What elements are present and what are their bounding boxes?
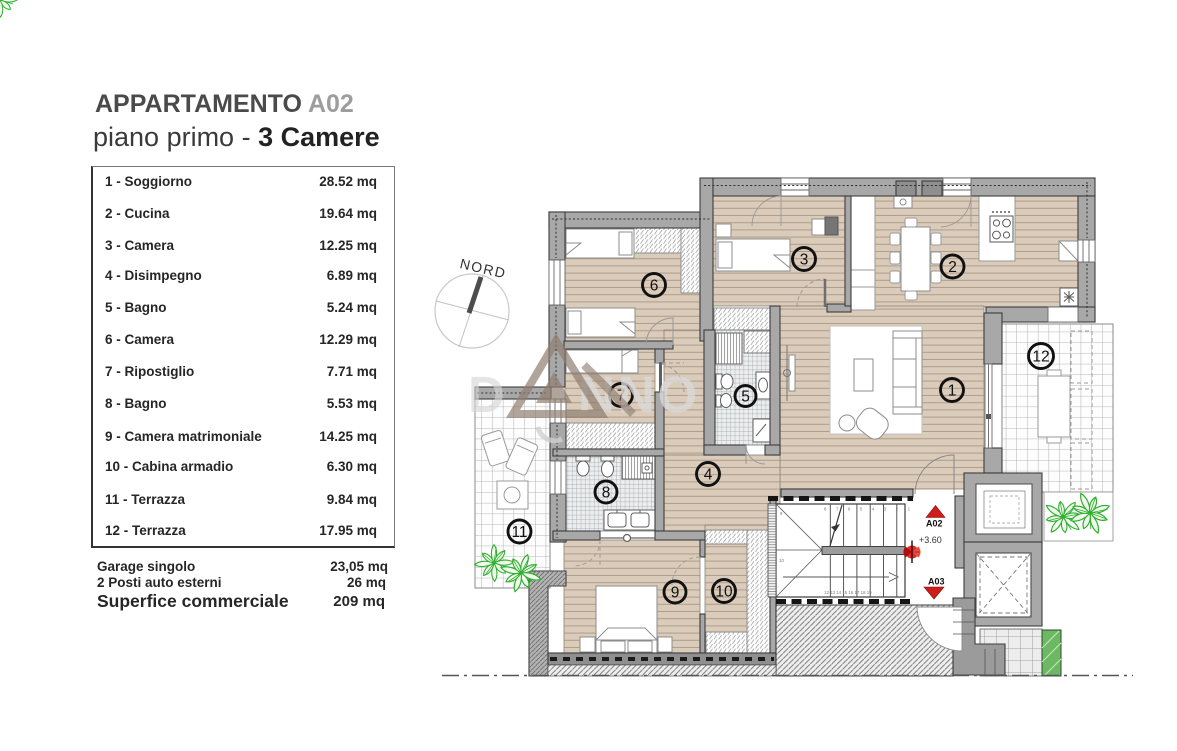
svg-text:12: 12 <box>1032 349 1049 366</box>
svg-text:1: 1 <box>948 383 957 400</box>
svg-text:87654321: 87654321 <box>824 507 920 512</box>
svg-text:D: D <box>468 366 505 423</box>
svg-text:6: 6 <box>650 278 659 295</box>
svg-text:10: 10 <box>779 558 784 563</box>
svg-text:12 13 14 15 16 17 18 19: 12 13 14 15 16 17 18 19 <box>824 590 872 595</box>
svg-text:NORD: NORD <box>458 255 508 281</box>
svg-text:8: 8 <box>602 485 611 502</box>
svg-text:A02: A02 <box>926 519 943 529</box>
svg-text:2: 2 <box>948 259 957 276</box>
svg-text:11: 11 <box>511 524 527 541</box>
svg-text:4: 4 <box>704 467 713 484</box>
svg-text:10: 10 <box>715 584 733 601</box>
svg-text:3: 3 <box>800 252 809 269</box>
svg-text:+3.60: +3.60 <box>919 535 942 545</box>
svg-text:9: 9 <box>671 585 680 602</box>
svg-text:A03: A03 <box>928 577 945 587</box>
svg-text:5: 5 <box>741 389 750 406</box>
